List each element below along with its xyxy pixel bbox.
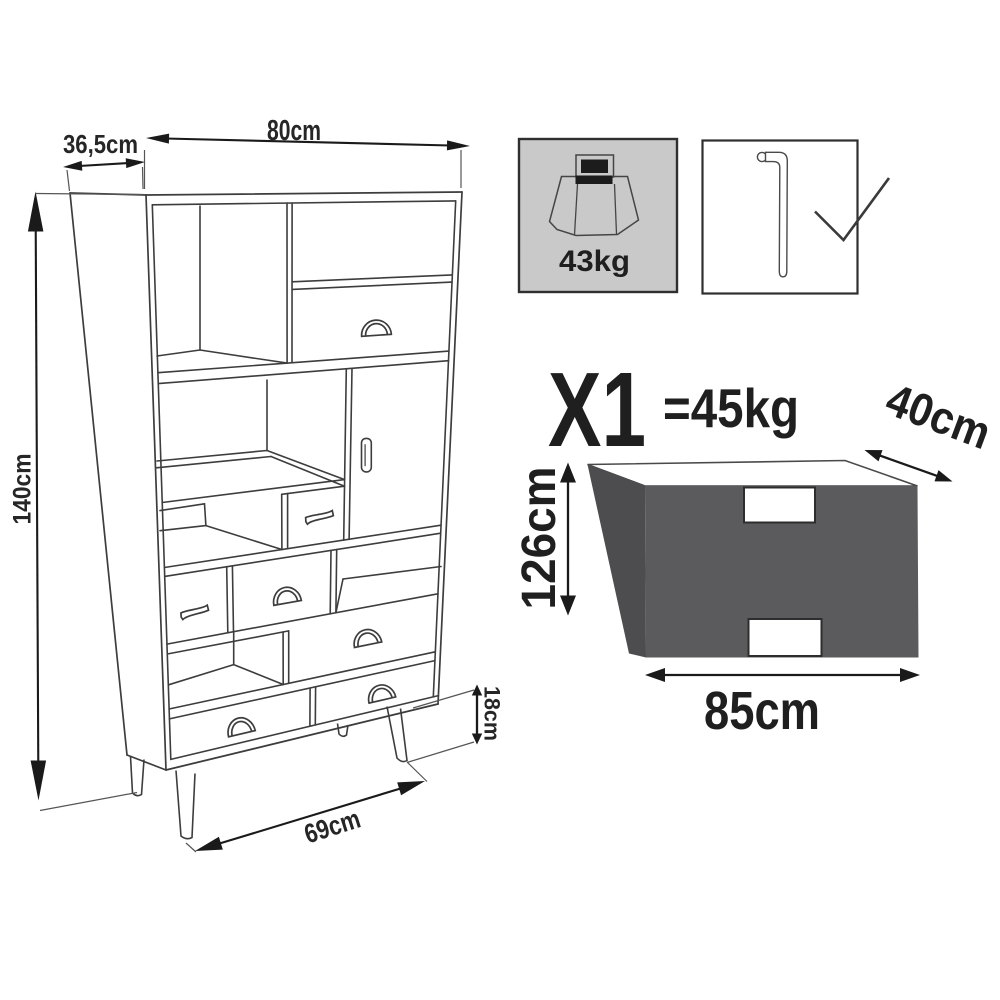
svg-text:43kg: 43kg: [559, 245, 630, 278]
svg-text:140cm: 140cm: [9, 454, 37, 525]
svg-text:126cm: 126cm: [513, 467, 566, 610]
svg-text:80cm: 80cm: [267, 115, 321, 147]
svg-text:=45kg: =45kg: [663, 377, 799, 439]
svg-text:18cm: 18cm: [480, 686, 505, 741]
svg-text:85cm: 85cm: [704, 681, 820, 741]
svg-text:36,5cm: 36,5cm: [63, 129, 138, 159]
svg-text:X1: X1: [548, 351, 646, 469]
